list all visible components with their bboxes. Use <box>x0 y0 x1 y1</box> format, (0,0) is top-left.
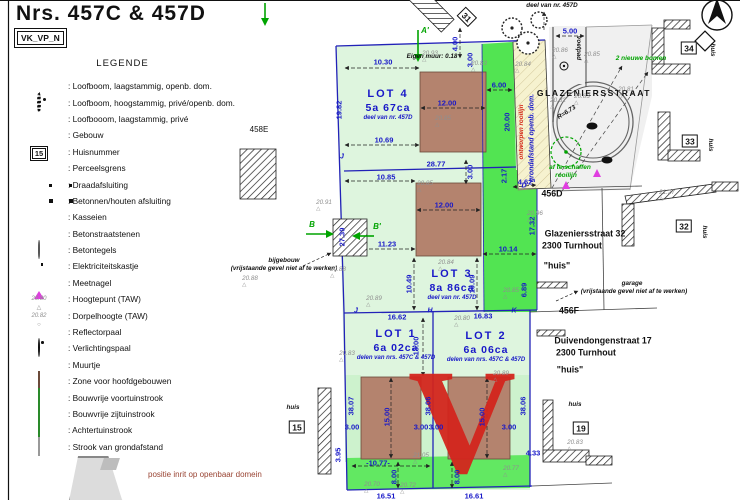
lot-l2: 6a 02ca <box>357 342 435 355</box>
plan-note: deel van nr. 457D <box>526 3 577 9</box>
legend-item-label: : Kasseien <box>68 212 107 222</box>
height-point: 20.85△ <box>435 116 451 128</box>
lot-l2: 5a 67ca <box>363 102 412 115</box>
boundary-letter: J <box>340 154 344 161</box>
measurement-label: 38.07 <box>347 397 355 416</box>
legend-item: : Verlichtingspaal <box>10 340 235 356</box>
plan-note: bijgebouw <box>268 258 299 264</box>
height-point: 20.83△ <box>339 351 355 363</box>
legend-item-label: : Achtertuinstrook <box>68 425 132 435</box>
height-point: 20.85△ <box>584 52 600 64</box>
lot-l1: LOT 4 <box>363 88 412 102</box>
measurement-label: 3.00 <box>345 423 360 431</box>
legend-item-label: : Perceelsgrens <box>68 163 126 173</box>
height-point: 20.80△ <box>454 316 470 328</box>
height-point: 20.81△ <box>618 87 634 99</box>
legend-item-label: : Hoogtepunt (TAW) <box>68 294 141 304</box>
legend-item-label: : Verlichtingspaal <box>68 343 131 353</box>
plan-note: "huis" <box>557 366 583 375</box>
legend-list: : Loofboom, laagstammig, openb. dom.: Lo… <box>10 78 235 455</box>
plan-note: 456F <box>559 307 579 316</box>
house-number-box: 32 <box>676 220 692 233</box>
lot-l3: deel van nr. 457D <box>427 295 476 302</box>
legend-item-label: : Loofbooom, laagstammig, privé <box>68 114 188 124</box>
height-point: 20.91△ <box>316 200 332 212</box>
plan-note: "huis" <box>544 262 570 271</box>
measurement-label: 15.00 <box>383 408 391 427</box>
legend-item: : Gebouw <box>10 127 235 143</box>
lot-l1: LOT 2 <box>447 330 525 344</box>
measurement-label: 3.00 <box>414 423 429 431</box>
legend-item: 20.82○: Dorpelhoogte (TAW) <box>10 307 235 323</box>
measurement-label: 3.00 <box>502 423 517 431</box>
house-number-box: 19 <box>573 422 589 435</box>
boundary-letter: A' <box>421 27 429 35</box>
lot-label: LOT 26a 06cadelen van nrs. 457C & 457D <box>447 330 525 364</box>
plan-note: Duivendongenstraat 17 <box>554 337 651 346</box>
survey-plan-sheet: V Nrs. 457C & 457D VK_VP_N LEGENDE : Loo… <box>0 0 740 500</box>
measurement-label: 8.00 <box>390 470 398 485</box>
legend-item-label: : Bouwvrije voortuinstrook <box>68 393 163 403</box>
house-number-icon: 15 <box>32 143 46 161</box>
tree-tall-icon <box>37 94 41 112</box>
house-number-box: 34 <box>681 42 697 55</box>
legend-item-label: : Muurtje <box>68 360 100 370</box>
legend-panel: Nrs. 457C & 457D VK_VP_N LEGENDE : Loofb… <box>10 0 235 500</box>
boundary-letter: H <box>427 308 432 315</box>
plan-note: 2300 Turnhout <box>556 349 616 358</box>
lot-l3: delen van nrs. 457C & 457D <box>357 355 435 362</box>
legend-item-label: : Draadafsluiting <box>68 180 128 190</box>
plan-note: af te schaffen <box>549 165 591 172</box>
height-point: 20.96△ <box>527 211 543 223</box>
boundary-letter: B' <box>373 223 381 231</box>
measurement-label: 12.00 <box>435 201 454 209</box>
height-point: 20.77△ <box>503 466 519 478</box>
height-point: 21.05△ <box>413 453 429 465</box>
measurement-label: 19.82 <box>335 101 343 120</box>
height-point: 20.83△ <box>471 61 487 73</box>
boundary-letter: K <box>511 308 516 315</box>
measurement-label: -10.77- <box>366 459 390 467</box>
lot-l3: deel van nr. 457D <box>363 115 412 122</box>
boundary-letter: J <box>354 308 358 315</box>
measurement-label: 10.49 <box>405 275 413 294</box>
measurement-label: 20.00 <box>503 113 511 132</box>
legend-item: : Bouwvrije zijtuinstrook <box>10 406 235 422</box>
legend-item-label: : Gebouw <box>68 130 104 140</box>
legend-item-label: : Betonnen/houten afsluiting <box>68 196 171 206</box>
height-point: 21.27△ <box>659 190 675 202</box>
legend-item-label: : Loofboom, laagstammig, openb. dom. <box>68 81 212 91</box>
house-number-box: 15 <box>289 421 305 434</box>
measurement-label: 10.14 <box>499 245 518 253</box>
legend-item: : Loofbooom, laagstammig, privé <box>10 111 235 127</box>
measurement-label: 11.23 <box>378 240 396 248</box>
lot-label: LOT 45a 67cadeel van nr. 457D <box>363 88 412 122</box>
measurement-label: 15.00 <box>478 408 486 427</box>
plan-note: rooilijn <box>555 173 577 180</box>
height-point: 20.72△ <box>400 483 416 495</box>
legend-item: : Draadafsluiting <box>10 176 235 192</box>
plan-note: huis <box>701 226 707 239</box>
legend-item-label: : Betonstraatstenen <box>68 229 140 239</box>
measurement-label: 38.06 <box>424 397 432 416</box>
legend-heading: LEGENDE <box>10 58 235 69</box>
measurement-label: 6.00 <box>492 81 507 89</box>
measurement-label: 28.77 <box>427 160 446 168</box>
lot-label: LOT 38a 86cadeel van nr. 457D <box>427 268 476 302</box>
measurement-label: 2.17 <box>500 169 508 184</box>
lot-l2: 8a 86ca <box>427 282 476 295</box>
legend-item-label: : Huisnummer <box>68 147 120 157</box>
legend-item-label: : Meetnagel <box>68 278 111 288</box>
plan-note: 458E <box>250 126 269 134</box>
legend-item-label: : Loofboom, hoogstammig, privé/openb. do… <box>68 98 235 108</box>
measurement-label: 4.33 <box>526 449 541 457</box>
measurement-label: 3.95 <box>334 448 342 463</box>
plan-note: huis <box>287 405 300 411</box>
boundary-letter: D <box>521 183 526 190</box>
legend-item-label: : Zone voor hoofdgebouwen <box>68 376 171 386</box>
concrete-tiles-icon <box>38 241 40 259</box>
measurement-label: 16.61 <box>465 492 484 500</box>
height-point: 20.93△ <box>422 51 438 63</box>
plan-note: (vrijstaande gevel niet af te werken) <box>581 289 687 295</box>
height-point: 20.88△ <box>242 276 258 288</box>
plan-note: ontworpen rooilijn <box>519 105 525 160</box>
legend-item: : Zone voor hoofdgebouwen <box>10 373 235 389</box>
lot-l1: LOT 3 <box>427 268 476 282</box>
sill-height-icon: 20.82○ <box>31 304 46 328</box>
measurement-label: 10.69 <box>375 136 394 144</box>
plan-note: garage <box>622 281 643 287</box>
legend-item: : Kasseien <box>10 209 235 225</box>
boundary-letter: B <box>309 221 315 229</box>
lot-l3: delen van nrs. 457C & 457D <box>447 357 525 364</box>
measurement-label: 8.00 <box>453 470 461 485</box>
height-point: 20.70△ <box>364 482 380 494</box>
legend-item: : Elektriciteitskastje <box>10 258 235 274</box>
legend-footnote-text: positie inrit op openbaar domein <box>148 470 262 479</box>
measurement-label: 3.00 <box>466 165 474 180</box>
plan-note: 456D <box>541 190 562 199</box>
height-point: 20.82△ <box>550 98 566 110</box>
height-point: 20.85△ <box>417 181 433 193</box>
measurement-label: 5.00 <box>563 27 578 35</box>
measurement-label: 4.00 <box>451 37 459 52</box>
height-point: 20.86△ <box>552 48 568 60</box>
measurement-label: 27.39 <box>338 228 346 247</box>
legend-item: 15: Huisnummer <box>10 144 235 160</box>
legend-item-label: : Elektriciteitskastje <box>68 261 139 271</box>
lot-l1: LOT 1 <box>357 328 435 342</box>
legend-item: : Betontegels <box>10 242 235 258</box>
measurement-label: 16.62 <box>388 313 407 321</box>
measurement-label: 16.83 <box>474 312 493 320</box>
plan-note: (vrijstaande gevel niet af te werken) <box>231 266 337 272</box>
height-point: 20.88△ <box>330 267 346 279</box>
measurement-label: 12.00 <box>438 99 457 107</box>
house-number-box: 33 <box>682 135 698 148</box>
plan-note: voetpad <box>575 36 581 60</box>
measurement-label: 10.30 <box>374 58 393 66</box>
reference-box: VK_VP_N <box>17 31 64 45</box>
legend-item: : Betonnen/houten afsluiting <box>10 193 235 209</box>
plan-note: Glazeniersstraat 32 <box>545 230 626 239</box>
legend-item-label: : Bouwvrije zijtuinstrook <box>68 409 155 419</box>
measurement-label: 6.89 <box>520 283 528 298</box>
measurement-label: 3.00 <box>429 423 444 431</box>
plan-note: 2 nieuwe bomen <box>616 56 667 63</box>
measurement-label: 38.06 <box>519 397 527 416</box>
lot-l2: 6a 06ca <box>447 344 525 357</box>
height-point: 20.89△ <box>366 296 382 308</box>
legend-item-label: : Dorpelhoogte (TAW) <box>68 311 148 321</box>
legend-item: : Muurtje <box>10 357 235 373</box>
legend-footnote: positie inrit op openbaar domein <box>10 448 270 500</box>
plan-note: grondafstand openb. dom. <box>529 94 536 182</box>
legend-item: : Loofboom, hoogstammig, privé/openb. do… <box>10 94 235 110</box>
height-point: 20.83△ <box>567 440 583 452</box>
legend-item: : Perceelsgrens <box>10 160 235 176</box>
lot-label: LOT 16a 02cadelen van nrs. 457C & 457D <box>357 328 435 362</box>
plan-note: huis <box>709 44 715 57</box>
legend-item: : Loofboom, laagstammig, openb. dom. <box>10 78 235 94</box>
height-point: 20.89△ <box>493 371 509 383</box>
plan-note: 2300 Turnhout <box>542 242 602 251</box>
plan-note: huis <box>707 139 713 152</box>
height-point: 20.83△ <box>574 94 590 106</box>
legend-item: : Bouwvrije voortuinstrook <box>10 389 235 405</box>
height-point: 20.84△ <box>515 62 531 74</box>
height-point: 20.85△ <box>503 288 519 300</box>
light-post-icon <box>38 339 40 357</box>
legend-item: : Betonstraatstenen <box>10 226 235 242</box>
legend-item: : Achtertuinstrook <box>10 422 235 438</box>
legend-item-label: : Reflectorpaal <box>68 327 122 337</box>
plan-note: huis <box>569 402 582 408</box>
house-number-box: 31 <box>457 7 478 28</box>
measurement-label: 10.85 <box>377 173 396 181</box>
page-title: Nrs. 457C & 457D <box>16 2 206 26</box>
legend-item-label: : Betontegels <box>68 245 116 255</box>
driveway-position-icon-fold <box>100 458 120 470</box>
